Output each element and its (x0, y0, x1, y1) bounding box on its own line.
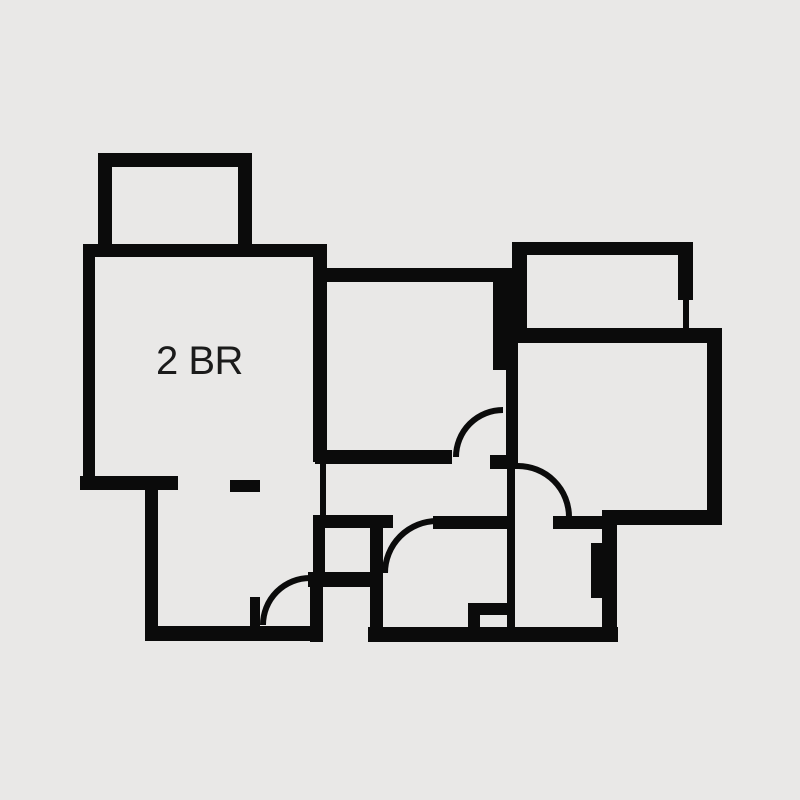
wall-junction-block (490, 455, 518, 469)
wall-threshold-dash (230, 480, 260, 492)
wall-left-lower (145, 490, 158, 641)
wall-left-step (80, 476, 178, 490)
wall-pocket-horizontal (468, 603, 507, 615)
wall-shaft-right (370, 515, 383, 642)
wall-tl-balcony-top (98, 153, 252, 167)
wall-tr-balcony-right (678, 242, 693, 300)
wall-bottom-center (368, 627, 618, 642)
wall-entry-door-stub (250, 597, 260, 626)
wall-hall-thin-left (320, 462, 326, 515)
wall-shaft-left (313, 515, 325, 572)
wall-bedroom-top (83, 244, 327, 257)
wall-entry-side (310, 587, 323, 642)
wall-living-top (327, 268, 518, 282)
wall-center-lower-thin (507, 469, 515, 627)
wall-tl-balcony-left (98, 167, 112, 245)
wall-living-bottom (315, 450, 452, 464)
door-arc-living (456, 410, 503, 457)
door-arc-entry (263, 578, 310, 625)
wall-center-upper-thin (506, 368, 518, 465)
door-arc-bathroom (385, 521, 437, 573)
wall-hall-bottom-mid (433, 516, 507, 529)
door-arc-right-room (518, 466, 569, 517)
wall-bedroom-left (83, 244, 95, 490)
wall-tr-balcony-top (512, 242, 693, 255)
room-label: 2 BR (156, 341, 243, 381)
wall-bottom-left (145, 626, 323, 641)
wall-tl-balcony-right (238, 167, 252, 245)
wall-br-protrusion (591, 543, 602, 598)
floor-plan-svg (0, 0, 800, 800)
wall-right-room-right (707, 343, 722, 525)
wall-right-room-top (512, 328, 722, 343)
wall-right-room-bottom (603, 510, 722, 525)
floor-plan-canvas: 2 BR (0, 0, 800, 800)
wall-hall-bottom-right (553, 516, 603, 529)
wall-tr-balcony-left (512, 255, 527, 328)
wall-br-room-right (602, 510, 617, 642)
wall-tr-balcony-right-thin (683, 300, 689, 328)
wall-divider-bedroom-living (313, 244, 327, 462)
